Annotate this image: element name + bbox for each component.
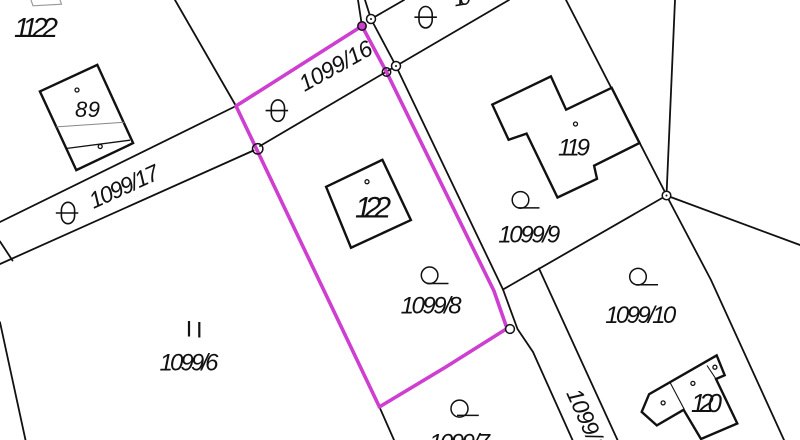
svg-text:1122: 1122 [14,12,58,43]
svg-text:1099/9: 1099/9 [498,222,560,249]
svg-text:1099/6: 1099/6 [160,350,220,377]
svg-text:1099/7: 1099/7 [429,430,492,440]
svg-text:119: 119 [558,135,590,162]
svg-text:120: 120 [691,388,723,418]
svg-text:122: 122 [355,192,391,225]
svg-text:89: 89 [75,97,100,122]
svg-text:1099/8: 1099/8 [401,293,463,320]
svg-text:1099/10: 1099/10 [605,302,677,329]
